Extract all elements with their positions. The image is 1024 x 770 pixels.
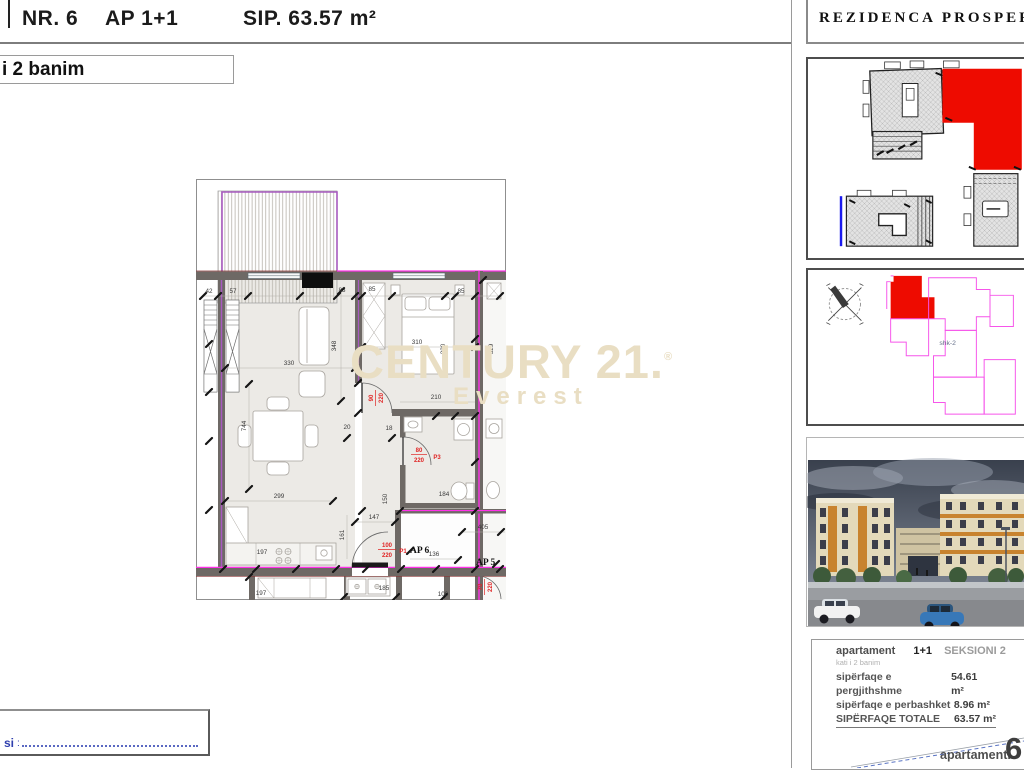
svg-text:197: 197	[257, 549, 268, 556]
key-plan: shk-2	[808, 270, 1022, 420]
apartament-label: apartament	[836, 645, 895, 657]
shaft-black	[302, 273, 333, 289]
svg-text:P1: P1	[399, 549, 407, 555]
courtyard-arch	[908, 556, 938, 576]
floor-note: kati i 2 banim	[836, 658, 1024, 667]
svg-text:18: 18	[385, 425, 393, 432]
svg-text:90: 90	[369, 394, 375, 401]
site-plan-box	[806, 57, 1024, 260]
svg-text:220: 220	[488, 581, 494, 592]
svg-text:83: 83	[338, 287, 346, 294]
svg-text:100: 100	[382, 543, 393, 549]
apartamenti-word: apartamenti	[940, 748, 1011, 762]
entry-door-leaf	[352, 563, 388, 568]
lower-left-building	[841, 190, 933, 246]
address-line: si :	[4, 738, 200, 748]
surface-total-value: 63.57 m²	[954, 712, 996, 726]
washing-machine	[454, 419, 473, 440]
kitchen-sink	[316, 546, 332, 560]
plan-sheet: { "header": { "nr": "NR. 6", "ap": "AP 1…	[0, 0, 1024, 768]
surface-row-label: sipërfaqe e pergjithshme	[836, 670, 951, 698]
apartment-number-title: NR. 6	[22, 7, 78, 31]
surface-row-label: sipërfaqe e perbashket	[836, 698, 950, 712]
armchair	[299, 371, 325, 397]
address-label: si	[4, 738, 14, 748]
key-plan-box: shk-2	[806, 268, 1024, 426]
apartment-number-footer: apartamenti 6	[811, 733, 1024, 768]
rendering-image	[807, 458, 1024, 626]
svg-text:348: 348	[331, 340, 338, 351]
surface-total-label: SIPËRFAQE TOTALE	[836, 712, 940, 726]
svg-text:150: 150	[382, 493, 389, 504]
svg-text:310: 310	[412, 339, 423, 346]
address-box: si :	[0, 709, 210, 756]
floor-label-box: i 2 banim	[0, 55, 234, 84]
svg-text:220: 220	[379, 392, 385, 403]
address-dotted-leader	[22, 744, 198, 747]
info-title-row: apartament 1+1 SEKSIONI 2	[836, 645, 1024, 657]
sheet-right-border	[791, 0, 792, 768]
header-rule	[0, 42, 791, 44]
svg-text:147: 147	[369, 514, 380, 521]
surface-row: sipërfaqe e perbashket 8.96 m²	[836, 698, 990, 712]
svg-text:185: 185	[379, 585, 390, 592]
chair	[267, 397, 289, 410]
surface-total-row: SIPËRFAQE TOTALE 63.57 m²	[836, 712, 996, 728]
svg-text:329: 329	[488, 343, 495, 354]
ap5-label: AP 5	[476, 558, 496, 568]
svg-text:70: 70	[478, 583, 484, 590]
apartment-type: 1+1	[913, 645, 932, 657]
lower-right-building	[964, 174, 1018, 247]
apartamenti-number: 6	[1005, 733, 1022, 767]
section-label: SEKSIONI 2	[944, 645, 1006, 657]
svg-text:320: 320	[440, 343, 447, 354]
svg-text:405: 405	[478, 524, 489, 531]
project-title: REZIDENCA PROSPER	[819, 10, 1024, 27]
lower-cabinet	[258, 578, 326, 598]
surface-row-value: 8.96 m²	[954, 698, 990, 712]
svg-text:184: 184	[439, 491, 450, 498]
svg-text:100: 100	[438, 591, 449, 598]
building-rendering	[807, 438, 1024, 626]
project-title-box: REZIDENCA PROSPER	[806, 0, 1024, 44]
surface-row: sipërfaqe e pergjithshme 54.61 m²	[836, 670, 990, 698]
svg-text:136: 136	[429, 551, 440, 558]
sheet-edge-tick	[8, 0, 10, 28]
svg-text:80: 80	[416, 448, 423, 454]
highlight-unit-red	[942, 69, 1021, 170]
toilet	[451, 482, 467, 500]
apartment-type-title: AP 1+1	[105, 7, 178, 31]
svg-text:161: 161	[339, 529, 346, 540]
svg-text:210: 210	[431, 394, 442, 401]
surface-title: SIP. 63.57 m²	[243, 7, 376, 31]
compass-icon	[826, 284, 863, 325]
svg-text:P3: P3	[433, 455, 441, 461]
svg-text:42: 42	[205, 288, 213, 295]
address-colon: :	[17, 739, 20, 748]
svg-text:85: 85	[368, 286, 376, 293]
floor-plan: 42 57 83 85 85 330 348 310 320 329 210 7…	[196, 179, 506, 600]
neighbor-toilet	[487, 482, 500, 499]
keyplan-unit-red	[891, 276, 935, 319]
svg-text:299: 299	[274, 493, 285, 500]
svg-text:57: 57	[229, 288, 237, 295]
surface-row-value: 54.61 m²	[951, 670, 990, 698]
svg-text:85: 85	[457, 288, 465, 295]
dining-table	[253, 411, 303, 461]
keyplan-stair-label: shk-2	[939, 340, 956, 347]
sofa	[299, 307, 329, 365]
chair	[267, 462, 289, 475]
svg-text:220: 220	[382, 553, 393, 559]
rendering-box	[806, 437, 1024, 627]
bath-sink	[404, 417, 422, 432]
right-building	[940, 494, 1024, 576]
ap6-label: AP 6	[410, 546, 430, 556]
svg-text:744: 744	[241, 420, 248, 431]
svg-text:197: 197	[256, 590, 267, 597]
left-building	[816, 498, 894, 576]
site-plan	[808, 59, 1022, 254]
svg-text:330: 330	[284, 360, 295, 367]
chair	[305, 425, 318, 447]
svg-text:220: 220	[414, 458, 425, 464]
svg-text:20: 20	[343, 424, 351, 431]
